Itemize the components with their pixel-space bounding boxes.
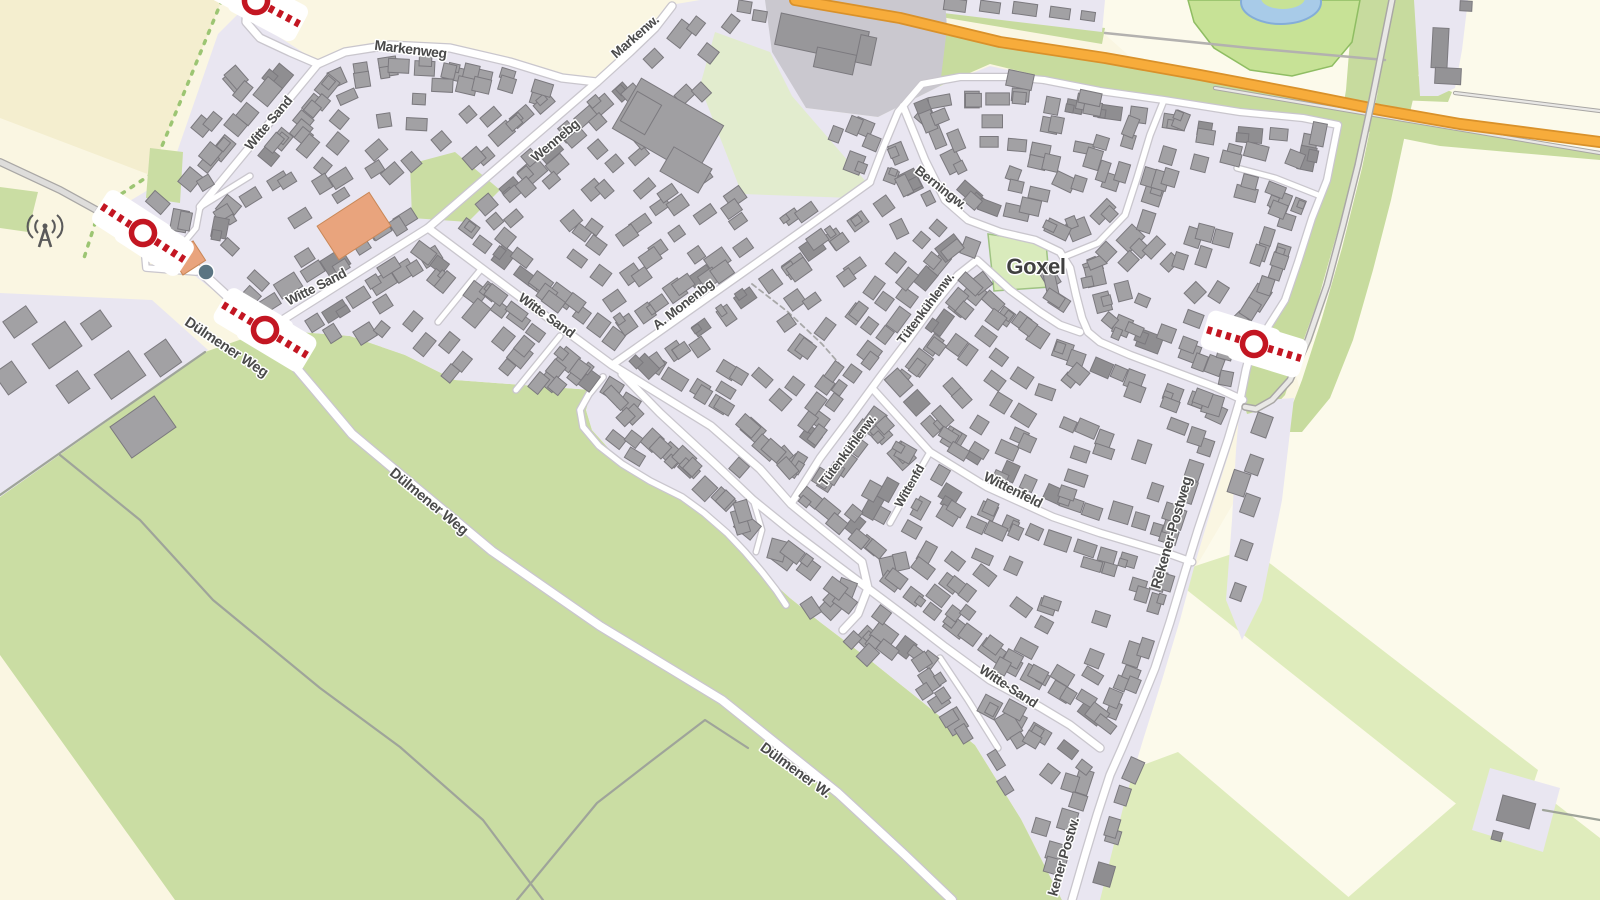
svg-text:Goxel: Goxel (1006, 254, 1065, 279)
